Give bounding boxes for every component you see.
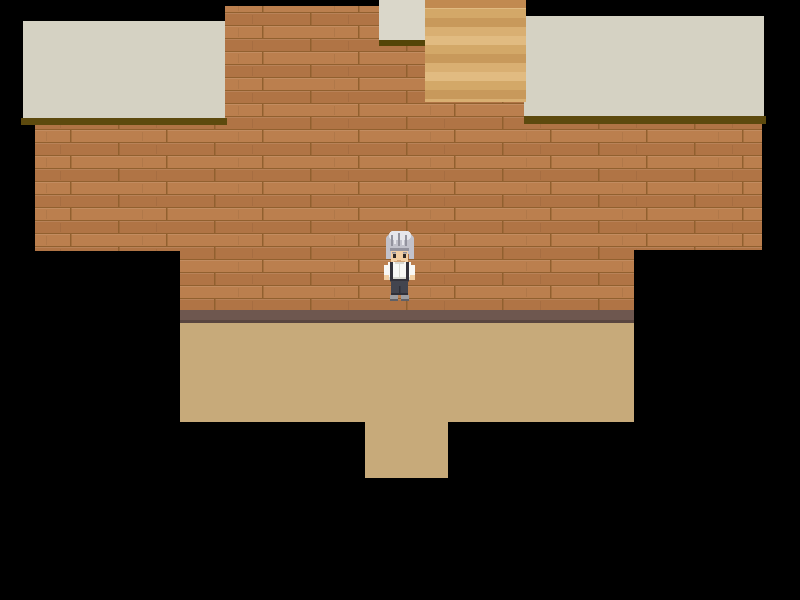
wood-panel-top-band xyxy=(425,0,526,8)
character-hand-right xyxy=(410,275,415,280)
character-brow-right xyxy=(403,252,407,254)
baseboard xyxy=(180,310,634,320)
character-sleeve-right xyxy=(410,265,415,276)
wood-panel xyxy=(425,0,526,102)
character-placket xyxy=(399,262,400,279)
character-suspender-right xyxy=(406,262,409,279)
character-bangs-shadow xyxy=(390,248,409,251)
floor[interactable] xyxy=(180,323,634,422)
character-shoe-sole-left xyxy=(390,299,398,301)
character-sideburn-left xyxy=(386,246,391,259)
wall-right xyxy=(524,124,762,250)
ceiling-panel-left xyxy=(23,21,225,118)
game-viewport[interactable] xyxy=(0,0,800,600)
baseboard-shadow xyxy=(180,320,634,323)
character-hair-highlight xyxy=(394,232,396,244)
ceiling-panel-right xyxy=(524,16,764,116)
ceiling-shadow-left xyxy=(21,118,227,125)
character-hair-highlight xyxy=(402,233,404,245)
game-scene-canvas[interactable] xyxy=(0,0,800,600)
character-brow-left xyxy=(392,252,396,254)
character-hair-streak xyxy=(405,235,407,246)
doorway-top[interactable] xyxy=(379,0,425,40)
character-shoe-sole-right xyxy=(401,299,409,301)
character-pants-hem xyxy=(391,293,408,295)
character-suspender-left xyxy=(390,262,393,279)
character-hair-streak xyxy=(398,233,400,246)
ceiling-shadow-right xyxy=(524,116,766,124)
wall-left xyxy=(35,125,225,251)
character-hand-left xyxy=(384,275,389,280)
doorway-top-shadow xyxy=(379,40,425,46)
character-eye-right xyxy=(403,254,406,258)
character-eye-left xyxy=(393,254,396,258)
character-sideburn-right xyxy=(409,246,414,259)
character-mouth xyxy=(397,260,401,261)
character-hair-streak xyxy=(391,235,393,246)
floor-doorway-south[interactable] xyxy=(365,422,448,478)
character-sleeve-left xyxy=(384,265,389,276)
